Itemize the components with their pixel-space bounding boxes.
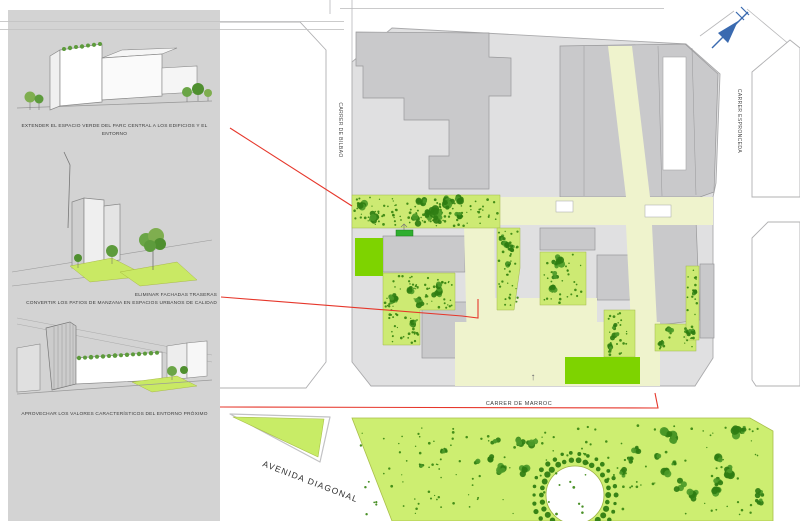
building-mid-east (597, 255, 630, 300)
street-line-overlay-1 (0, 21, 344, 22)
building-arrow-glyph: ↑ (531, 372, 536, 383)
urban-plan-board: ↑ CARRER DE BILBAO CARRER ESPRONCEDA CAR… (0, 0, 800, 521)
annotation-caption-3: APROVECHAR LOS VALORES CARACTERÍSTICOS D… (12, 411, 217, 419)
caption-1-line-1: EXTENDER EL ESPACIO VERDE DEL PARC CENTR… (21, 124, 207, 137)
annotation-caption-1: EXTENDER EL ESPACIO VERDE DEL PARC CENTR… (12, 123, 217, 139)
leader-line-3 (220, 393, 658, 408)
city-block-west (219, 22, 326, 388)
annotation-caption-2: ELIMINAR FACHADAS TRASERAS CONVERTIR LOS… (12, 292, 219, 308)
street-label-bilbao: CARRER DE BILBAO (337, 102, 343, 157)
green-patio-south (604, 310, 635, 357)
caption-2-line-2: CONVERTIR LOS PATIOS DE MANZANA EN ESPAC… (12, 300, 217, 308)
street-label-espronceda: CARRER ESPRONCEDA (736, 89, 742, 154)
city-block-northeast (752, 40, 800, 197)
triangle-parcel (233, 417, 324, 457)
street-label-diagonal: AVENIDA DIAGONAL (261, 459, 360, 505)
caption-3-line-1: APROVECHAR LOS VALORES CARACTERÍSTICOS D… (21, 412, 207, 417)
building-mid-row (540, 228, 595, 250)
courtyards (663, 57, 686, 170)
building-east-edge (700, 264, 714, 338)
annotation-panel: EXTENDER EL ESPACIO VERDE DEL PARC CENTR… (8, 10, 220, 521)
sketch-entorno-proximo (12, 310, 217, 408)
street-label-marroc: CARRER DE MARROC (486, 401, 552, 407)
park-plaza-circle (546, 466, 604, 521)
caption-2-line-1: ELIMINAR FACHADAS TRASERAS (12, 292, 217, 300)
city-block-east (752, 222, 800, 386)
sketch-patios-manzana (12, 140, 217, 290)
building-central (383, 236, 465, 272)
sketch-extend-green-space (12, 28, 217, 122)
